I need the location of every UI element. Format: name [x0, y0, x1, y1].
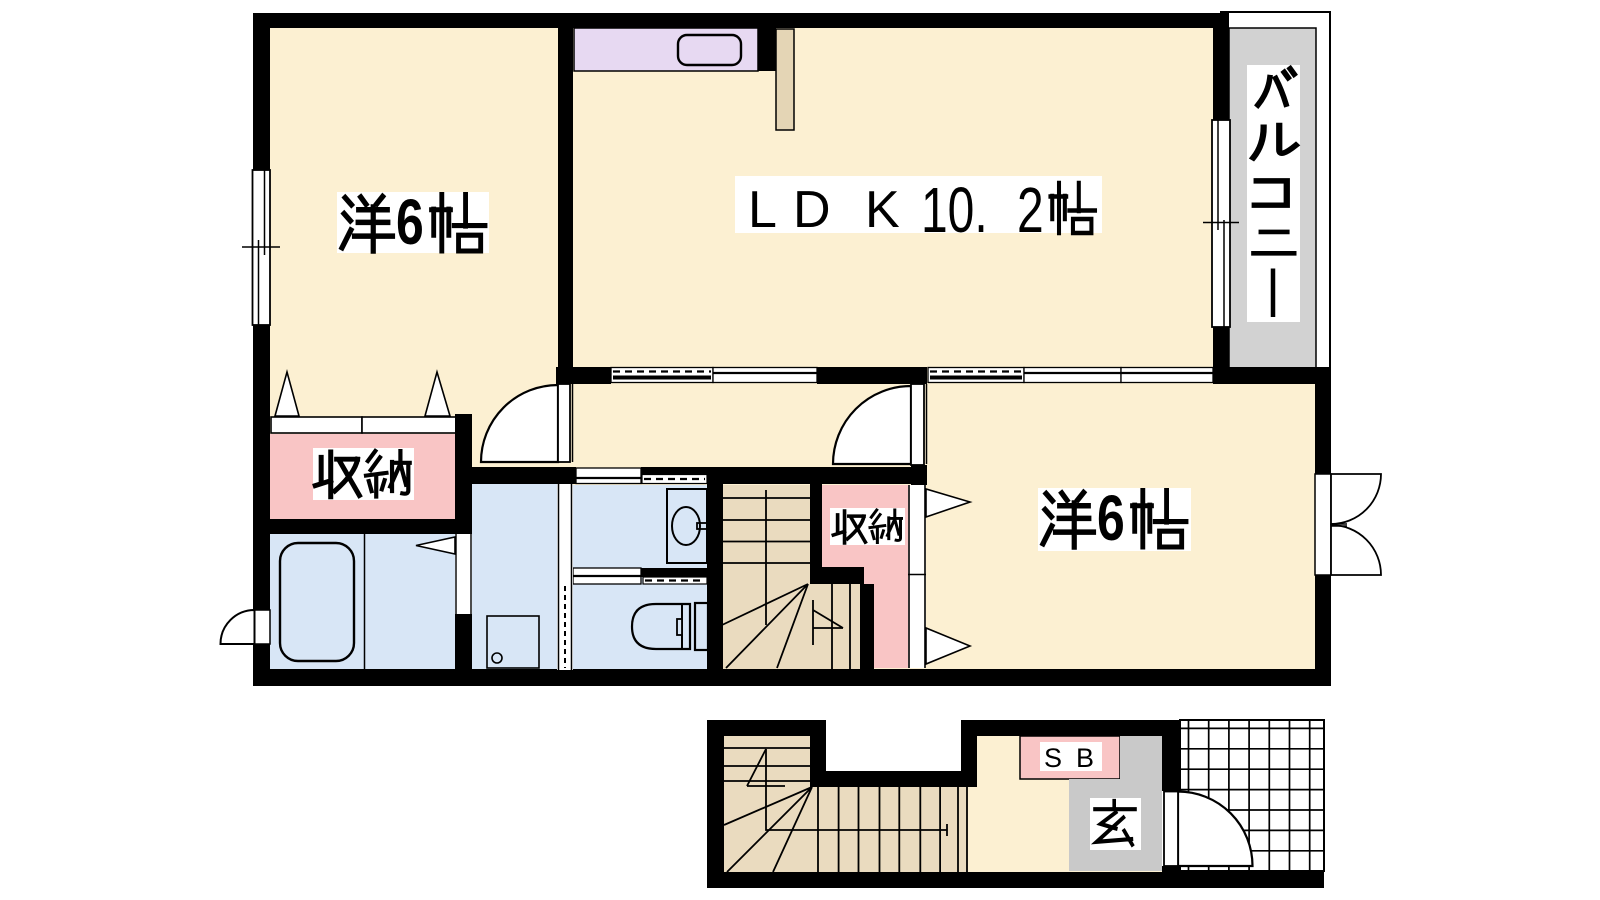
svg-text:B: B — [1076, 743, 1094, 773]
svg-text:D: D — [793, 181, 831, 239]
svg-text:6: 6 — [1097, 483, 1125, 554]
svg-text:2: 2 — [1017, 174, 1044, 245]
svg-text:K: K — [865, 181, 900, 239]
svg-text:10.: 10. — [921, 174, 988, 245]
svg-text:6: 6 — [396, 187, 424, 258]
svg-text:L: L — [748, 181, 777, 239]
svg-text:S: S — [1044, 743, 1062, 773]
